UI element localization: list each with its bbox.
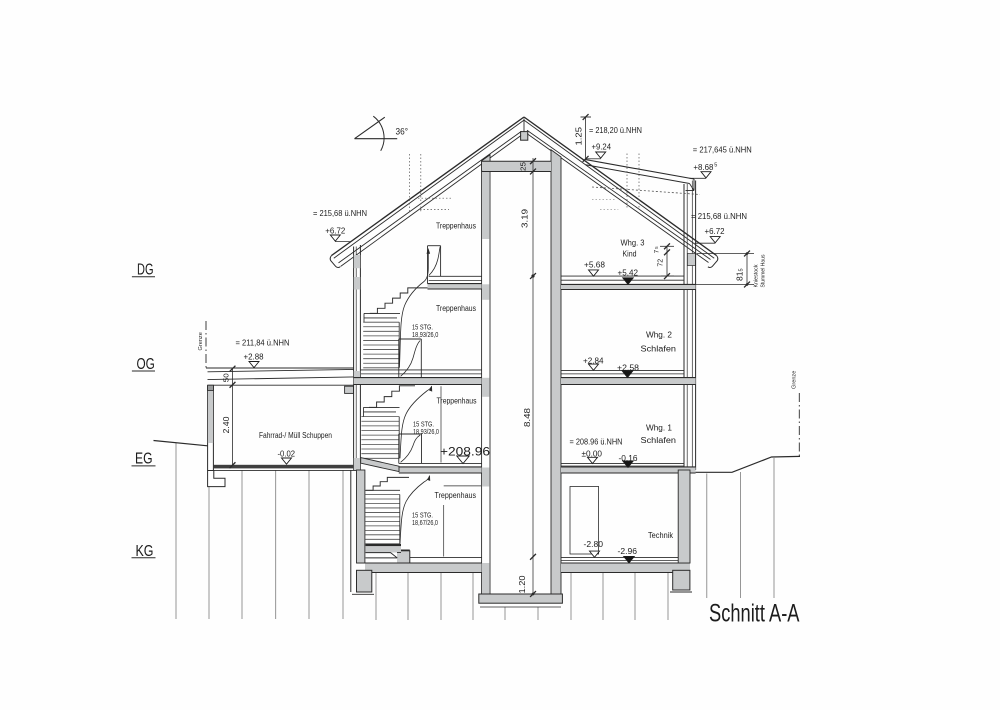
svg-text:Treppenhaus: Treppenhaus — [437, 397, 477, 406]
svg-text:OG: OG — [137, 356, 155, 373]
svg-text:Treppenhaus: Treppenhaus — [436, 304, 476, 313]
svg-text:DG: DG — [137, 262, 154, 279]
svg-text:EG: EG — [135, 451, 153, 468]
svg-text:Treppenhaus: Treppenhaus — [435, 491, 477, 500]
svg-text:Grenze: Grenze — [791, 371, 797, 389]
svg-text:1.25: 1.25 — [573, 127, 583, 146]
svg-text:= 218,20 ü.NHN: = 218,20 ü.NHN — [589, 125, 642, 135]
svg-text:-2.96: -2.96 — [618, 546, 638, 556]
svg-text:5: 5 — [714, 163, 717, 169]
svg-text:81: 81 — [735, 271, 745, 281]
svg-text:+6.72: +6.72 — [325, 226, 345, 236]
svg-text:8.48: 8.48 — [522, 408, 532, 427]
svg-text:36°: 36° — [396, 127, 409, 138]
svg-text:15 STG.: 15 STG. — [412, 513, 433, 520]
svg-text:+2.88: +2.88 — [244, 352, 264, 362]
svg-text:-2.80: -2.80 — [584, 539, 604, 549]
svg-text:50: 50 — [223, 373, 230, 382]
svg-text:2.40: 2.40 — [221, 416, 231, 433]
svg-text:Whg. 2: Whg. 2 — [646, 331, 673, 340]
svg-text:+6.72: +6.72 — [705, 226, 725, 236]
svg-text:72: 72 — [658, 259, 665, 267]
svg-text:Schlafen: Schlafen — [641, 345, 677, 354]
svg-text:3.19: 3.19 — [519, 209, 529, 228]
svg-text:= 217,645 ü.NHN: = 217,645 ü.NHN — [693, 145, 752, 155]
svg-text:Treppenhaus: Treppenhaus — [436, 222, 476, 231]
svg-text:25: 25 — [521, 162, 528, 171]
svg-text:Whg. 1: Whg. 1 — [646, 424, 673, 433]
svg-text:+9.24: +9.24 — [592, 142, 612, 152]
svg-text:= 215,68 ü.NHN: = 215,68 ü.NHN — [691, 211, 747, 221]
svg-text:Schnitt A-A: Schnitt A-A — [709, 600, 800, 628]
svg-text:+5.68: +5.68 — [584, 260, 605, 270]
svg-text:Kind: Kind — [623, 250, 637, 259]
svg-text:Schlafen: Schlafen — [641, 436, 677, 445]
svg-text:18,93/26,0: 18,93/26,0 — [412, 332, 438, 339]
svg-text:-0.02: -0.02 — [278, 449, 296, 459]
svg-text:18,93/26,0: 18,93/26,0 — [413, 429, 439, 436]
svg-text:+8.68: +8.68 — [693, 162, 713, 172]
svg-text:Technik: Technik — [648, 531, 674, 540]
svg-text:Whg. 3: Whg. 3 — [621, 239, 646, 248]
svg-text:15 STG.: 15 STG. — [413, 422, 434, 429]
svg-text:5: 5 — [739, 268, 745, 271]
svg-text:= 215,68 ü.NHN: = 215,68 ü.NHN — [313, 208, 367, 218]
svg-text:7: 7 — [654, 249, 661, 253]
svg-text:+5.42: +5.42 — [618, 268, 639, 278]
svg-text:15 STG.: 15 STG. — [412, 325, 433, 332]
svg-text:1.20: 1.20 — [517, 575, 527, 593]
svg-text:Stummel Haus: Stummel Haus — [761, 254, 767, 287]
svg-text:= 211,84 ü.NHN: = 211,84 ü.NHN — [236, 338, 290, 348]
svg-text:18,67/26,0: 18,67/26,0 — [412, 520, 438, 527]
svg-text:Kniestock: Kniestock — [754, 264, 760, 288]
svg-text:Fahrrad-/ Müll Schuppen: Fahrrad-/ Müll Schuppen — [259, 431, 332, 440]
svg-text:= 208.96 ü.NHN: = 208.96 ü.NHN — [570, 437, 623, 447]
svg-text:Grenze: Grenze — [198, 332, 204, 350]
